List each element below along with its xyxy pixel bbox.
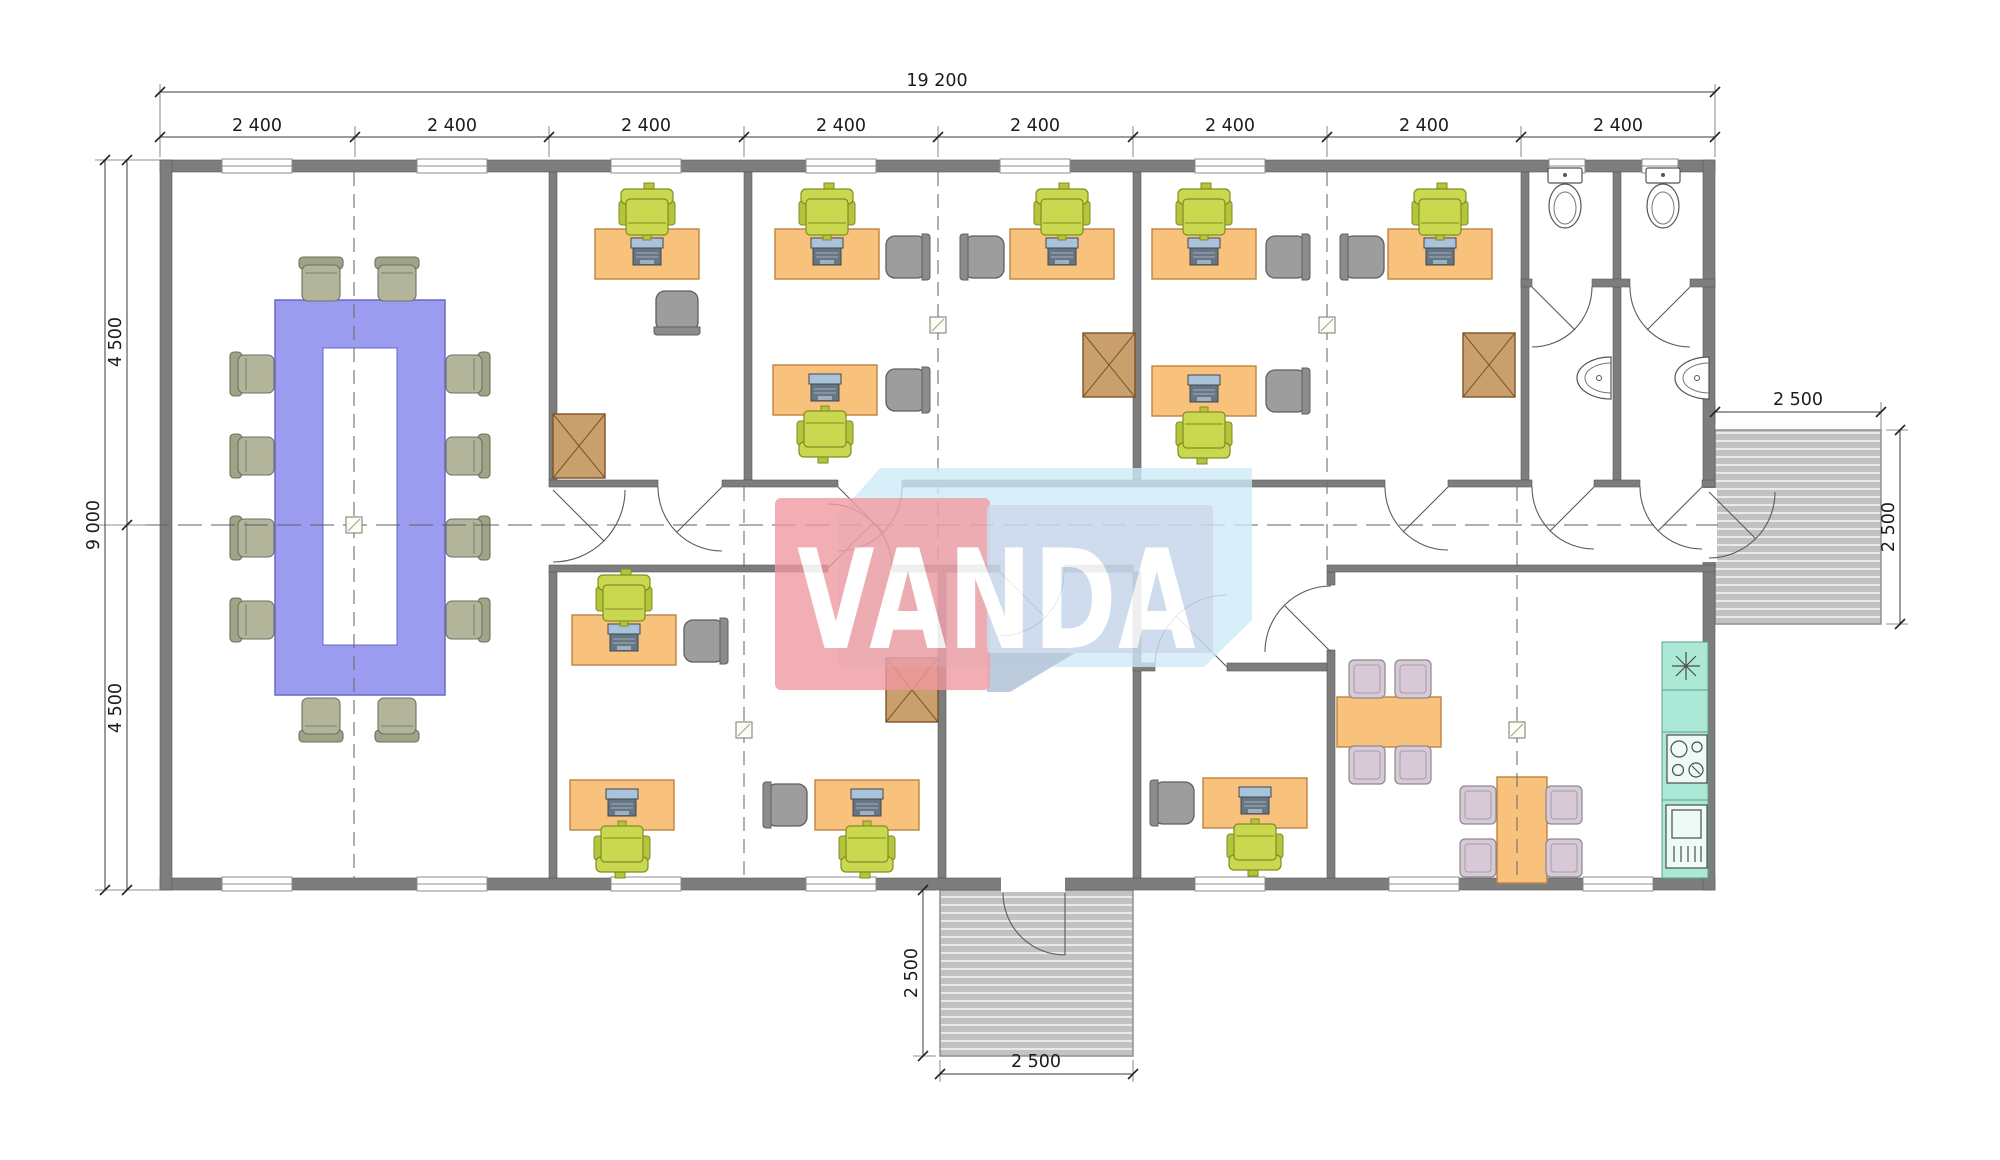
dim-bottom-porch-width: 2 500 bbox=[1011, 1052, 1061, 1072]
task-chair bbox=[619, 183, 675, 240]
conference-chair bbox=[446, 434, 490, 478]
visitor-chair bbox=[1150, 780, 1194, 826]
dim-module: 2 400 bbox=[232, 116, 282, 136]
task-chair bbox=[594, 821, 650, 878]
conference-chair bbox=[446, 598, 490, 642]
storage-cabinet bbox=[553, 414, 605, 478]
conference-chair bbox=[299, 257, 343, 301]
visitor-chair bbox=[654, 291, 700, 335]
window bbox=[611, 159, 681, 173]
dim-module: 2 400 bbox=[621, 116, 671, 136]
dining-chair bbox=[1460, 839, 1496, 877]
visitor-chair bbox=[886, 234, 930, 280]
kitchen-sink-icon bbox=[1666, 805, 1707, 868]
task-chair bbox=[1176, 407, 1232, 464]
task-chair bbox=[797, 406, 853, 463]
cooker-icon bbox=[1672, 652, 1700, 680]
window bbox=[417, 159, 487, 173]
storage-cabinet bbox=[1083, 333, 1135, 397]
window bbox=[806, 159, 876, 173]
visitor-chair bbox=[1340, 234, 1384, 280]
conference-chair bbox=[446, 352, 490, 396]
grid-marker bbox=[1319, 317, 1335, 333]
dim-bottom-porch-depth: 2 500 bbox=[902, 948, 922, 998]
conference-table-opening bbox=[323, 348, 397, 645]
window bbox=[1000, 159, 1070, 173]
watermark-logo: VANDA bbox=[775, 468, 1252, 692]
conference-chair bbox=[375, 257, 419, 301]
conference-chair bbox=[375, 698, 419, 742]
task-chair bbox=[1412, 183, 1468, 240]
dim-right-porch-depth: 2 500 bbox=[1879, 502, 1899, 552]
conference-chair bbox=[230, 516, 274, 560]
dim-right-porch-width: 2 500 bbox=[1773, 390, 1823, 410]
dim-height-half: 4 500 bbox=[106, 317, 126, 367]
dim-module: 2 400 bbox=[1205, 116, 1255, 136]
watermark-text: VANDA bbox=[797, 520, 1197, 681]
window bbox=[1195, 159, 1265, 173]
conference-chair bbox=[230, 434, 274, 478]
window bbox=[806, 877, 876, 891]
task-chair bbox=[1227, 819, 1283, 876]
dining-chair bbox=[1546, 786, 1582, 824]
dining-chair bbox=[1349, 746, 1385, 784]
toilet-icon bbox=[1548, 168, 1582, 228]
visitor-chair bbox=[763, 782, 807, 828]
visitor-chair bbox=[1266, 234, 1310, 280]
dining-chair bbox=[1546, 839, 1582, 877]
dining-chair bbox=[1460, 786, 1496, 824]
visitor-chair bbox=[684, 618, 728, 664]
dining-table bbox=[1337, 697, 1441, 747]
window bbox=[611, 877, 681, 891]
visitor-chair bbox=[886, 367, 930, 413]
task-chair bbox=[596, 569, 652, 626]
task-chair bbox=[1034, 183, 1090, 240]
window bbox=[222, 159, 292, 173]
toilet-icon bbox=[1646, 168, 1680, 228]
grid-marker bbox=[1509, 722, 1525, 738]
dim-total-width: 19 200 bbox=[906, 71, 967, 91]
task-chair bbox=[1176, 183, 1232, 240]
storage-cabinet bbox=[1463, 333, 1515, 397]
dim-module: 2 400 bbox=[1399, 116, 1449, 136]
window bbox=[1583, 877, 1653, 891]
conference-chair bbox=[299, 698, 343, 742]
dim-module: 2 400 bbox=[427, 116, 477, 136]
dining-chair bbox=[1395, 660, 1431, 698]
dim-module: 2 400 bbox=[1010, 116, 1060, 136]
stove-icon bbox=[1667, 735, 1707, 783]
dim-module: 2 400 bbox=[1593, 116, 1643, 136]
dining-table bbox=[1497, 777, 1547, 883]
conference-chair bbox=[446, 516, 490, 560]
dim-total-height: 9 000 bbox=[84, 500, 104, 550]
window bbox=[1195, 877, 1265, 891]
bottom-entrance-porch bbox=[940, 890, 1133, 1056]
grid-marker bbox=[930, 317, 946, 333]
visitor-chair bbox=[1266, 368, 1310, 414]
dining-chair bbox=[1349, 660, 1385, 698]
floor-plan-drawing: 19 200 2 400 2 400 2 400 2 400 2 400 2 4… bbox=[0, 0, 2000, 1160]
task-chair bbox=[839, 821, 895, 878]
right-side-porch bbox=[1715, 430, 1881, 624]
floor-plan-canvas: 19 200 2 400 2 400 2 400 2 400 2 400 2 4… bbox=[0, 0, 2000, 1160]
window bbox=[222, 877, 292, 891]
dim-height-half: 4 500 bbox=[106, 683, 126, 733]
task-chair bbox=[799, 183, 855, 240]
conference-chair bbox=[230, 352, 274, 396]
dining-chair bbox=[1395, 746, 1431, 784]
visitor-chair bbox=[960, 234, 1004, 280]
window bbox=[1389, 877, 1459, 891]
window bbox=[417, 877, 487, 891]
grid-marker bbox=[736, 722, 752, 738]
conference-chair bbox=[230, 598, 274, 642]
grid-marker bbox=[346, 517, 362, 533]
dim-module: 2 400 bbox=[816, 116, 866, 136]
